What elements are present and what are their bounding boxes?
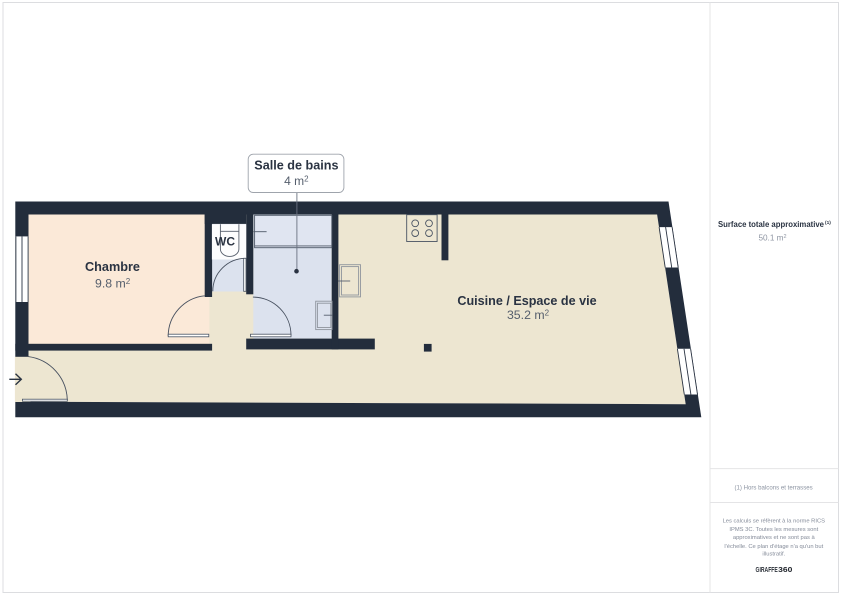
- svg-text:Surface totale approximative: Surface totale approximative: [718, 220, 825, 229]
- svg-text:50.1 m2: 50.1 m2: [758, 233, 786, 242]
- svg-text:WC: WC: [215, 234, 235, 248]
- svg-text:approximatives et ne sont pas: approximatives et ne sont pas à: [733, 535, 816, 541]
- svg-text:9.8 m2: 9.8 m2: [95, 276, 131, 290]
- svg-text:illustratif.: illustratif.: [762, 552, 785, 558]
- svg-text:Chambre: Chambre: [85, 259, 140, 274]
- svg-text:IPMS 3C. Toutes les mesures so: IPMS 3C. Toutes les mesures sont: [729, 527, 818, 533]
- svg-text:Salle de bains: Salle de bains: [254, 157, 338, 172]
- svg-text:(1) Hors balcons et terrasses: (1) Hors balcons et terrasses: [734, 485, 812, 492]
- svg-text:360: 360: [778, 567, 792, 574]
- svg-text:(1): (1): [825, 220, 831, 226]
- svg-text:GIRAFFE: GIRAFFE: [756, 567, 779, 574]
- svg-text:35.2 m2: 35.2 m2: [507, 308, 550, 322]
- svg-text:Cuisine / Espace de vie: Cuisine / Espace de vie: [457, 293, 596, 308]
- svg-text:l'échelle. Ce plan d'étage n'a: l'échelle. Ce plan d'étage n'a qu'un but: [724, 544, 823, 550]
- svg-text:Les calculs se réfèrent à la n: Les calculs se réfèrent à la norme RICS: [723, 519, 826, 525]
